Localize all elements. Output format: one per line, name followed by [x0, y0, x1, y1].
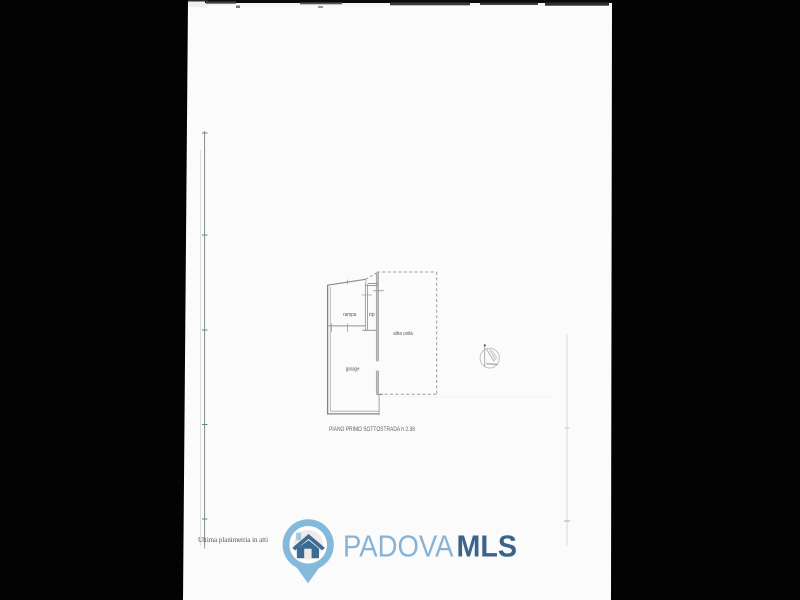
svg-text:PIANO PRIMO SOTTOSTRADA h 2.38: PIANO PRIMO SOTTOSTRADA h 2.38 [329, 426, 415, 433]
svg-text:Ultima planimetria in atti: Ultima planimetria in atti [198, 535, 268, 544]
svg-text:PADOVA: PADOVA [343, 529, 454, 564]
svg-text:altra unità: altra unità [393, 331, 413, 337]
svg-text:garage: garage [346, 366, 360, 372]
svg-text:MLS: MLS [457, 529, 518, 564]
svg-text:rip: rip [369, 312, 375, 318]
svg-text:rampa: rampa [343, 312, 356, 318]
